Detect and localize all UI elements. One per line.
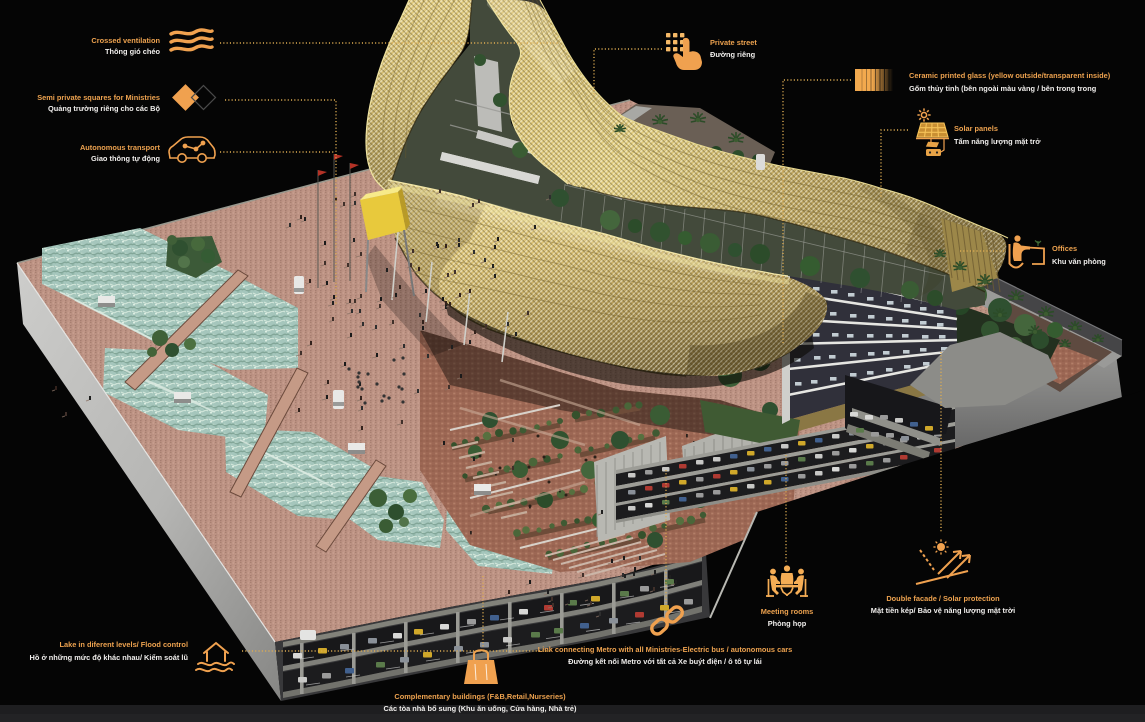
svg-text:Solar panels: Solar panels bbox=[954, 124, 998, 133]
svg-text:Lake in diferent levels/ Flood: Lake in diferent levels/ Flood control bbox=[59, 640, 188, 649]
svg-text:Crossed ventilation: Crossed ventilation bbox=[91, 36, 160, 45]
svg-text:Private street: Private street bbox=[710, 38, 757, 47]
svg-text:Giao thông tự động: Giao thông tự động bbox=[91, 154, 160, 163]
svg-text:Gốm thủy tinh (bên ngoài màu v: Gốm thủy tinh (bên ngoài màu vàng / bên … bbox=[909, 84, 1097, 93]
svg-text:Offices: Offices bbox=[1052, 244, 1077, 253]
svg-text:Link connecting Metro with all: Link connecting Metro with all Ministrie… bbox=[538, 645, 793, 654]
svg-text:Thông gió chéo: Thông gió chéo bbox=[105, 47, 160, 56]
svg-text:Complementary buildings (F&B,R: Complementary buildings (F&B,Retail,Nurs… bbox=[394, 692, 566, 701]
svg-text:Đường riêng: Đường riêng bbox=[710, 50, 756, 59]
svg-text:Mặt tiền kép/ Bảo vệ năng lượn: Mặt tiền kép/ Bảo vệ năng lượng mặt trời bbox=[871, 606, 1015, 615]
svg-text:Double facade / Solar protecti: Double facade / Solar protection bbox=[886, 594, 1000, 603]
svg-text:Semi private squares for Minis: Semi private squares for Ministries bbox=[37, 93, 160, 102]
svg-text:Hồ ở những mức độ khác nhau/ K: Hồ ở những mức độ khác nhau/ Kiểm soát l… bbox=[30, 653, 189, 662]
svg-text:Tấm năng lượng mặt trở: Tấm năng lượng mặt trở bbox=[954, 137, 1041, 146]
svg-text:Ceramic printed glass (yellow: Ceramic printed glass (yellow outside/tr… bbox=[909, 71, 1111, 80]
svg-text:Quảng trường riêng cho các Bộ: Quảng trường riêng cho các Bộ bbox=[48, 104, 161, 113]
svg-text:Meeting rooms: Meeting rooms bbox=[761, 607, 814, 616]
svg-text:Autonomous transport: Autonomous transport bbox=[80, 143, 161, 152]
svg-text:Đường kết nối Metro với tất cả: Đường kết nối Metro với tất cả Xe buýt đ… bbox=[568, 657, 762, 666]
svg-text:Khu văn phòng: Khu văn phòng bbox=[1052, 257, 1106, 266]
svg-text:Phòng họp: Phòng họp bbox=[768, 619, 807, 628]
svg-text:Các tòa nhà bổ sung (Khu ăn uố: Các tòa nhà bổ sung (Khu ăn uống, Cửa hà… bbox=[384, 704, 578, 713]
